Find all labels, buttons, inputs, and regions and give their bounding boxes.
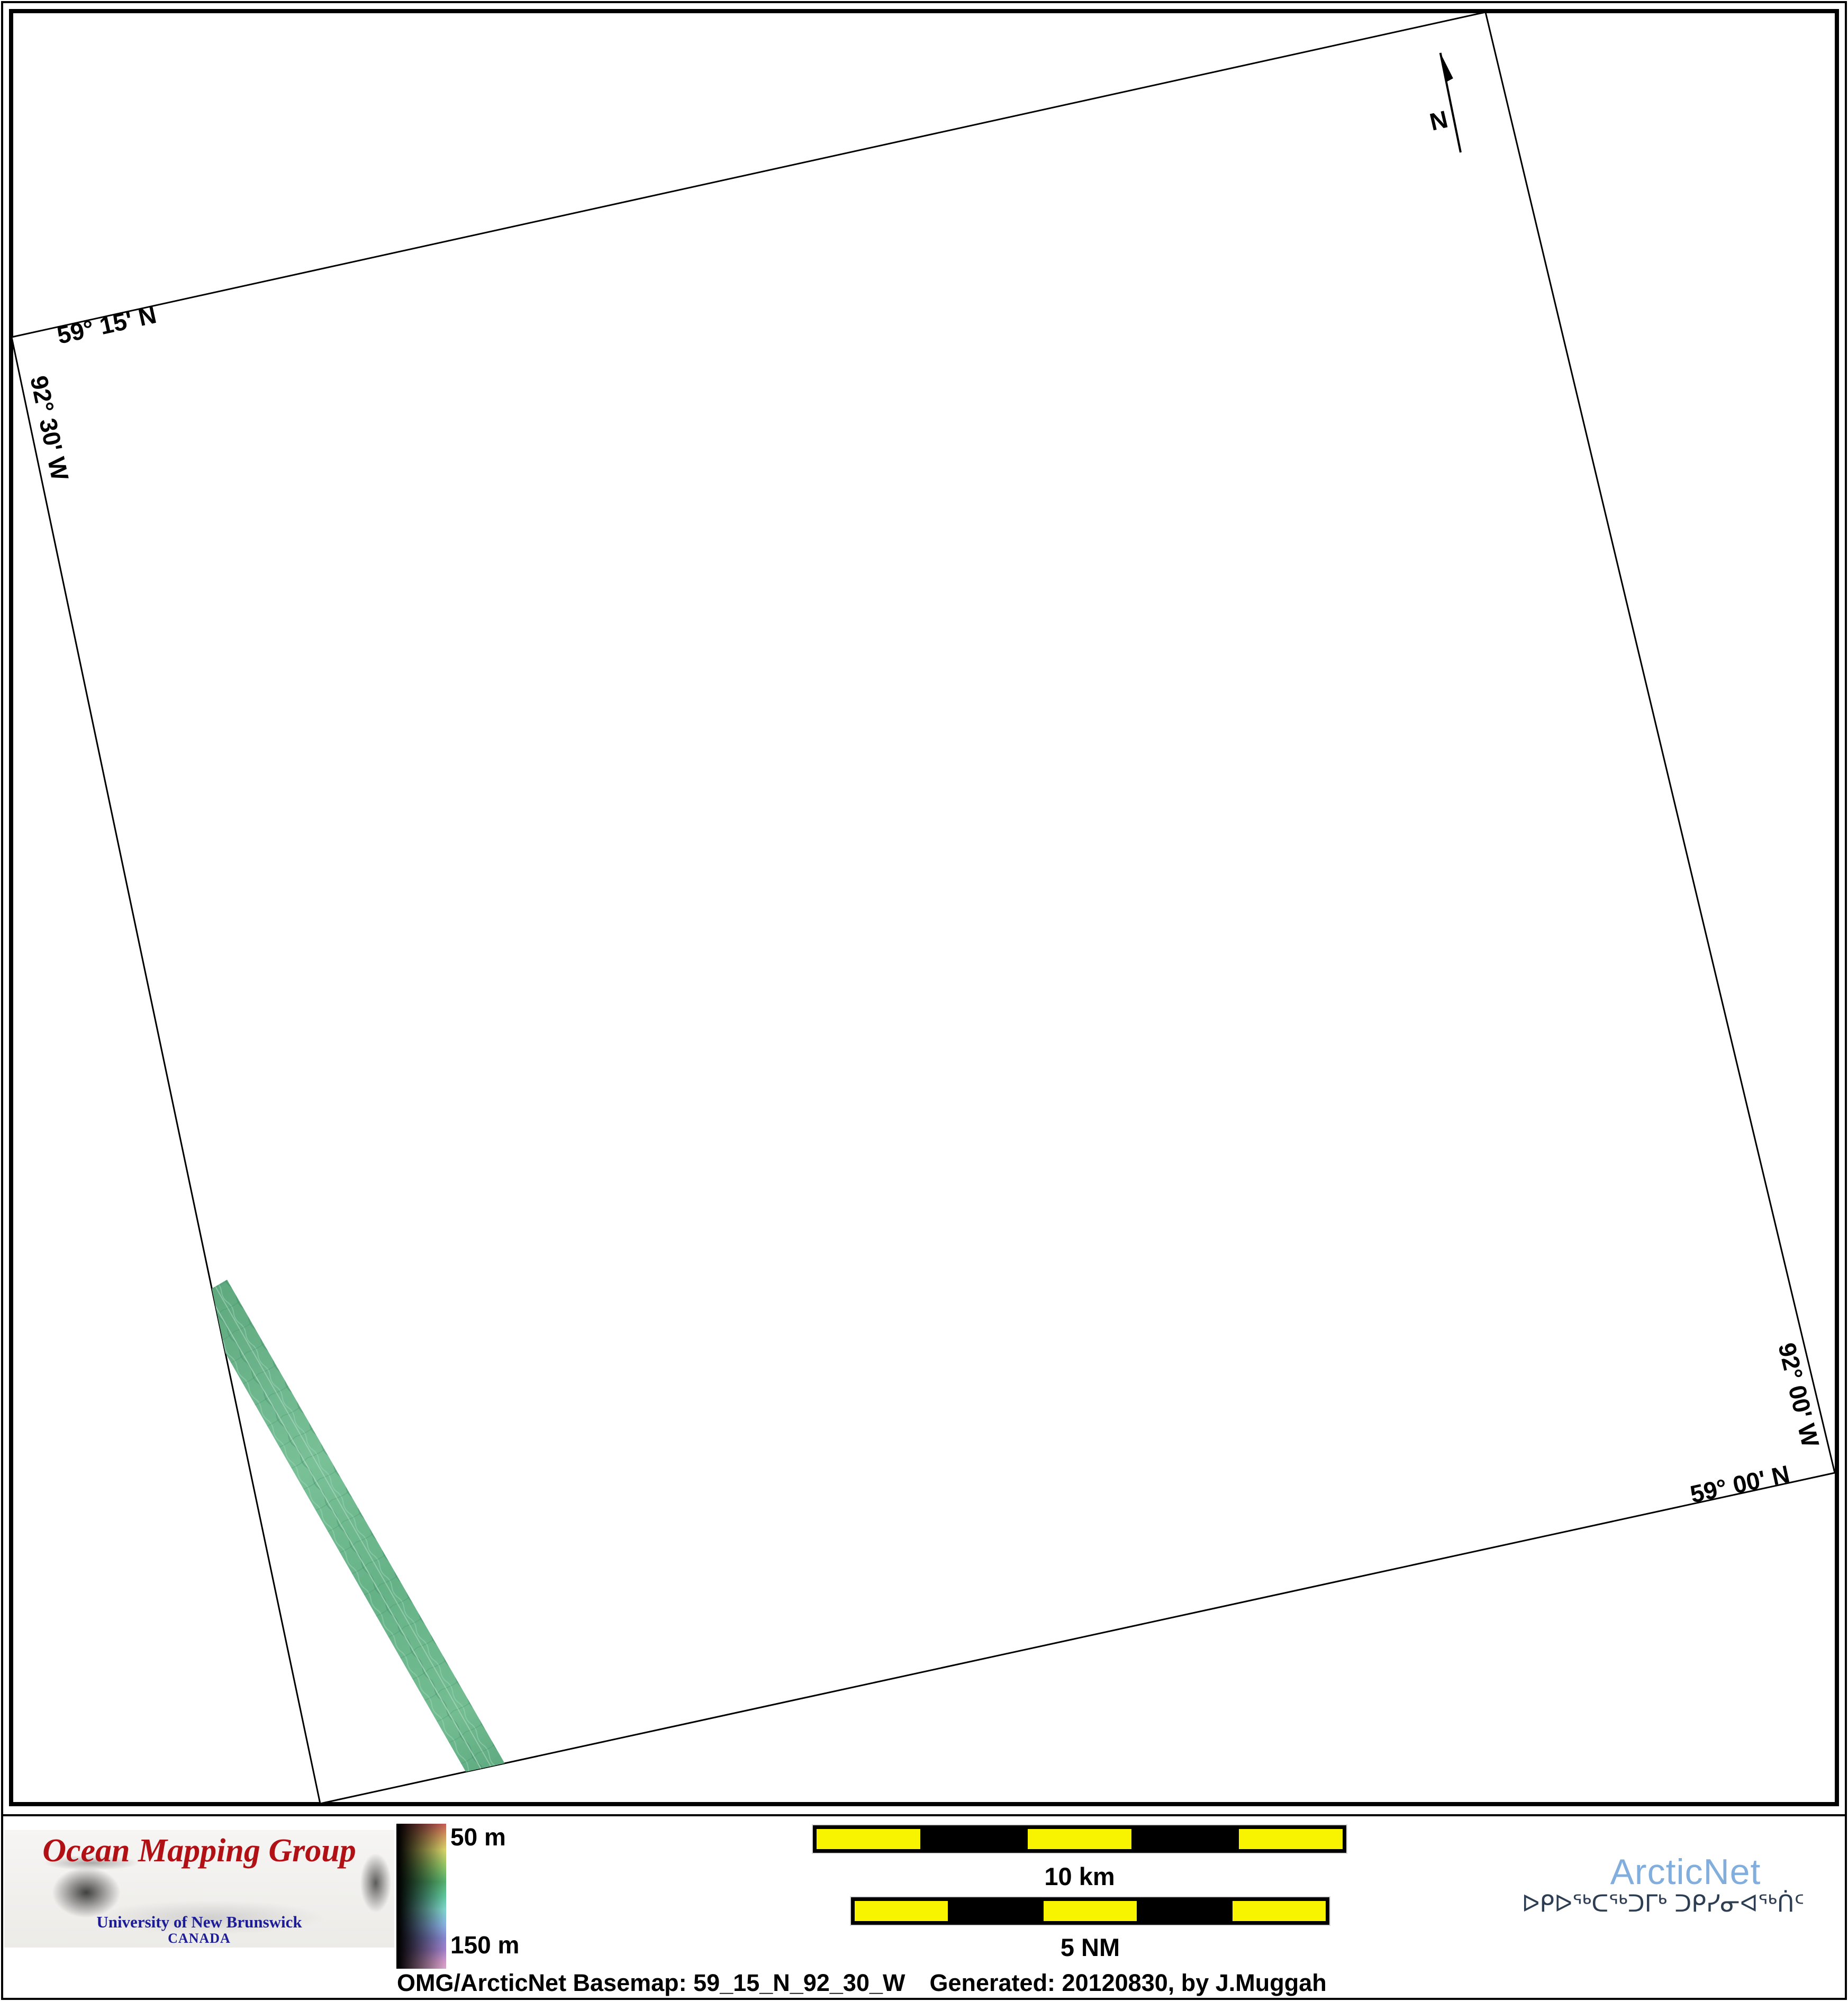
scalebar-segment <box>1026 1827 1133 1851</box>
footer-caption: OMG/ArcticNet Basemap: 59_15_N_92_30_WGe… <box>397 1969 1327 1997</box>
basemap-id-text: OMG/ArcticNet Basemap: 59_15_N_92_30_W <box>397 1969 905 1996</box>
scalebar-nautical-miles <box>851 1897 1329 1925</box>
scalebar-segment <box>1231 1899 1327 1923</box>
scalebar-segment <box>853 1899 949 1923</box>
scalebar-segment <box>1042 1899 1138 1923</box>
basemap-page: { "map": { "corner_labels": { "top_lat":… <box>0 0 1848 2001</box>
omg-logo-title: Ocean Mapping Group <box>4 1832 394 1870</box>
omg-logo: Ocean Mapping Group University of New Br… <box>4 1830 394 1948</box>
scalebar-nautical-miles-label: 5 NM <box>851 1933 1329 1962</box>
scalebar-segment <box>949 1899 1043 1923</box>
scalebar-segment <box>1133 1827 1237 1851</box>
depth-deep-label: 150 m <box>450 1931 519 1959</box>
arcticnet-inuktitut-text: ᐅᑭᐅᖅᑕᖅᑐᒥᒃ ᑐᑭᓯᓂᐊᖅᑏᑦ <box>1511 1890 1815 1917</box>
scalebar-segment <box>815 1827 922 1851</box>
depth-shallow-label: 50 m <box>450 1823 506 1851</box>
generated-text: Generated: 20120830, by J.Muggah <box>929 1969 1326 1996</box>
arcticnet-logo: ArcticNet <box>1598 1851 1773 1893</box>
scalebar-segment <box>922 1827 1026 1851</box>
footer-divider <box>1 1814 1847 1816</box>
depth-colorbar <box>396 1824 446 1969</box>
omg-logo-university: University of New Brunswick <box>4 1913 394 1932</box>
graticule-cell-boundary <box>12 12 1835 1804</box>
scalebar-kilometres-label: 10 km <box>813 1862 1346 1891</box>
scalebar-segment <box>1237 1827 1344 1851</box>
map-canvas: 59° 15' N 92° 30' W 92° 00' W 59° 00' N … <box>0 0 1848 1815</box>
scalebar-segment <box>1138 1899 1231 1923</box>
scalebar-kilometres <box>813 1825 1346 1853</box>
omg-logo-country: CANADA <box>4 1931 394 1946</box>
